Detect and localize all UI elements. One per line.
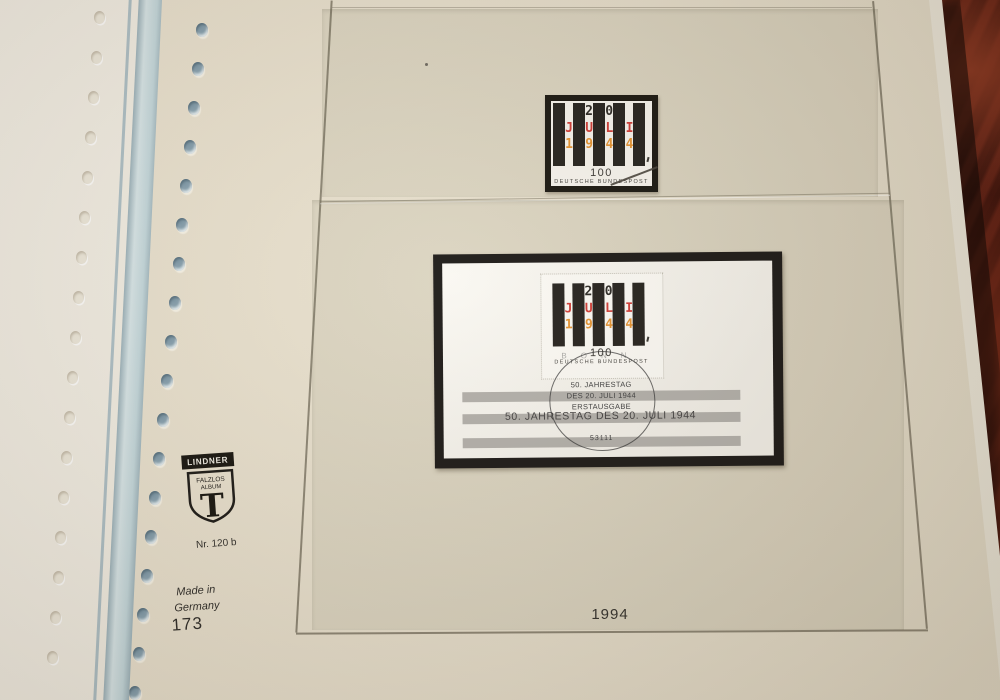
punch-hole xyxy=(133,647,145,661)
punch-hole xyxy=(73,291,84,304)
dust-speck xyxy=(425,63,428,66)
stamp-month: JULI xyxy=(565,122,646,135)
punch-hole xyxy=(50,611,61,624)
frame-border-top xyxy=(332,7,872,8)
shield-text-falzlos: FALZLOS xyxy=(196,476,226,485)
postmark-line-2: DES 20. JULI 1944 xyxy=(567,391,636,401)
sheet-stamp-day: 20 xyxy=(584,285,625,298)
punch-hole xyxy=(184,140,196,154)
souvenir-sheet: 20 JULI 1944 100 DEUTSCHE BUNDESPOST 50.… xyxy=(442,261,774,459)
punch-hole xyxy=(129,686,141,700)
punch-hole xyxy=(58,491,69,504)
stamp-album-photo: 20 JULI 1944 100 DEUTSCHE BUNDESPOST 20 xyxy=(0,0,1000,700)
punch-hole xyxy=(165,335,177,349)
sheet-stamp-month: JULI xyxy=(565,302,646,316)
souvenir-sheet-mount: 20 JULI 1944 100 DEUTSCHE BUNDESPOST 50.… xyxy=(433,251,784,468)
punch-hole xyxy=(180,179,192,193)
punch-hole xyxy=(67,371,78,384)
punch-hole xyxy=(196,23,208,37)
page-year-caption: 1994 xyxy=(540,606,680,623)
stamp-mount-top: 20 JULI 1944 100 DEUTSCHE BUNDESPOST xyxy=(545,95,658,192)
lindner-shield-logo: FALZLOS ALBUM T xyxy=(186,468,238,525)
punch-hole xyxy=(91,51,102,64)
stamp-20-juli-1944: 20 JULI 1944 100 DEUTSCHE BUNDESPOST xyxy=(551,101,652,186)
punch-hole xyxy=(76,251,87,264)
punch-hole xyxy=(55,531,66,544)
sheet-stamp-year: 1944 xyxy=(565,318,646,332)
punch-hole xyxy=(47,651,58,664)
punch-hole xyxy=(88,91,99,104)
postmark-postal-code: 53111 xyxy=(590,435,613,442)
page-number: 173 xyxy=(171,614,204,636)
sheet-stamp-design-tick xyxy=(646,336,649,341)
punch-hole xyxy=(79,211,90,224)
sheet-stamp-bars xyxy=(550,281,651,282)
page-ref-number: Nr. 120 b xyxy=(196,537,237,551)
punch-hole xyxy=(70,331,81,344)
punch-hole xyxy=(82,171,93,184)
punch-hole xyxy=(188,101,200,115)
punch-hole xyxy=(53,571,64,584)
punch-hole xyxy=(94,11,105,24)
lindner-logo-wordmark: LINDNER xyxy=(181,452,234,470)
frame-border-bottom xyxy=(296,629,928,634)
postmark-line-1: 50. JAHRESTAG xyxy=(571,380,632,390)
punch-hole xyxy=(85,131,96,144)
punch-hole xyxy=(173,257,185,271)
postmark-line-3: ERSTAUSGABE xyxy=(572,402,631,412)
stamp-year: 1944 xyxy=(565,138,646,151)
punch-hole xyxy=(169,296,181,310)
stamp-country-text: DEUTSCHE BUNDESPOST xyxy=(551,179,652,185)
punch-hole xyxy=(61,451,72,464)
punch-hole xyxy=(141,569,153,583)
punch-hole xyxy=(176,218,188,232)
page-margin-labels: LINDNER FALZLOS ALBUM T Nr. 120 b Made i… xyxy=(150,424,286,672)
punch-hole xyxy=(157,413,169,427)
punch-hole xyxy=(137,608,149,622)
stamp-design-tick xyxy=(646,157,649,162)
postmark-city: BONN xyxy=(561,351,640,361)
stamp-day: 20 xyxy=(585,105,625,118)
shield-monogram-t: T xyxy=(199,486,226,525)
punch-hole xyxy=(192,62,204,76)
punch-hole xyxy=(145,530,157,544)
punch-hole xyxy=(161,374,173,388)
punch-hole xyxy=(64,411,75,424)
